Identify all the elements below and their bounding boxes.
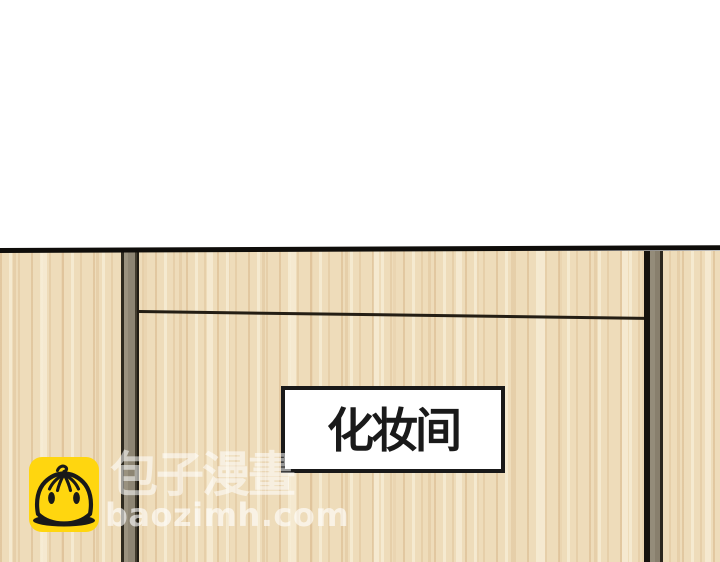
door-sign-label: 化妆间 — [327, 404, 459, 455]
door-frame-right — [644, 251, 663, 562]
comic-panel: 化妆间 包子漫畫 baozimh.com — [0, 0, 720, 562]
door-sign: 化妆间 — [281, 386, 505, 473]
door-frame-left — [121, 251, 139, 562]
